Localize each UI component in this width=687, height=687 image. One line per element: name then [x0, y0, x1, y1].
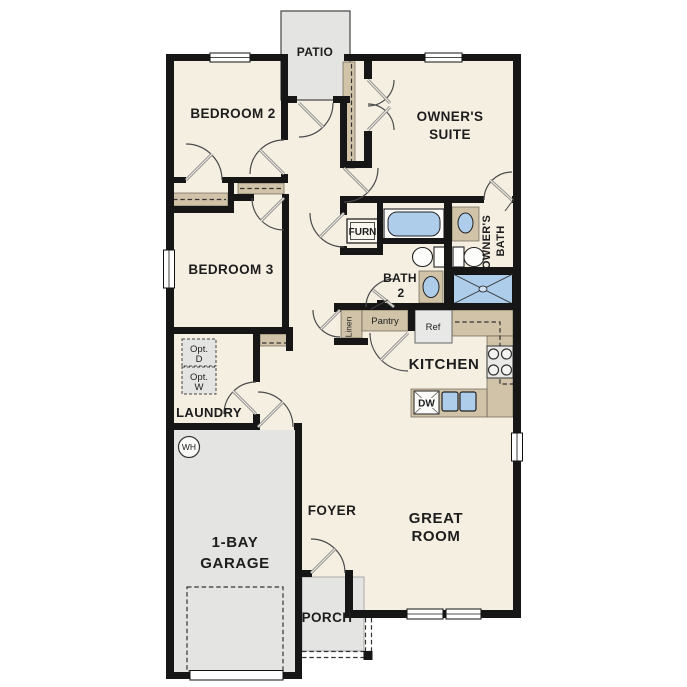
porch-post [364, 651, 373, 660]
foyer-label: FOYER [308, 503, 357, 518]
owners-bath-sink [458, 213, 473, 233]
hall-closet [260, 334, 288, 346]
laundry-label: LAUNDRY [176, 405, 242, 420]
owners-toilet-tank [453, 247, 464, 267]
bath2-toilet-bowl [413, 248, 433, 267]
bath2-label-2: 2 [398, 286, 405, 300]
burner-icon [489, 349, 499, 359]
window-bedroom2 [210, 53, 250, 62]
water-heater-label: WH [182, 442, 196, 452]
owners-bath-label-1: OWNER'S [481, 215, 493, 269]
fridge-label: Ref [426, 322, 441, 333]
owners-suite-label-2: SUITE [429, 127, 471, 142]
owners-bath-label-2: BATH [495, 226, 507, 257]
window-bedroom3 [164, 250, 175, 288]
great-room-label-1: GREAT [409, 510, 463, 527]
window-great-room-right [512, 433, 523, 461]
patio-label: PATIO [297, 45, 333, 59]
wall-kitchen-top [334, 303, 521, 310]
opt-washer-label-2: W [195, 382, 204, 393]
kitchen-sink-basin [460, 392, 476, 411]
bath2-label-1: BATH [383, 271, 417, 285]
burner-icon [502, 349, 512, 359]
great-room-label-2: ROOM [411, 528, 460, 545]
wall-left-exterior [166, 54, 174, 679]
porch-label: PORCH [302, 610, 353, 625]
kitchen-counter-top [452, 310, 513, 336]
bath2-sink [423, 277, 439, 298]
bedroom3-label: BEDROOM 3 [188, 262, 273, 277]
garage-label-1: 1-BAY [212, 534, 259, 551]
dishwasher-label: DW [418, 399, 435, 410]
garage-door-opening [190, 671, 283, 681]
shower-drain [479, 286, 487, 292]
floor-plan-drawing: PATIO BEDROOM 2 OWNER'S SUITE BEDROOM 3 … [0, 0, 687, 687]
owners-suite-label-1: OWNER'S [417, 109, 484, 124]
garage-label-2: GARAGE [200, 555, 269, 572]
furnace-label: FURN [349, 227, 377, 238]
shower [453, 274, 513, 304]
kitchen-sink-basin [442, 392, 458, 411]
floor-plan-page: PATIO BEDROOM 2 OWNER'S SUITE BEDROOM 3 … [0, 0, 687, 687]
linen-label: Linen [344, 316, 354, 337]
wall-garage-right [295, 430, 302, 679]
stove [487, 346, 513, 378]
pantry-label: Pantry [371, 316, 399, 327]
burner-icon [502, 365, 512, 375]
window-great-room-bottom-2 [446, 609, 481, 619]
opt-dryer-label-2: D [196, 354, 203, 365]
bath2-toilet-tank [434, 247, 445, 267]
bathtub [388, 212, 440, 236]
bedroom2-label: BEDROOM 2 [190, 106, 275, 121]
window-owners-suite [425, 53, 462, 62]
burner-icon [489, 365, 499, 375]
window-great-room-bottom-1 [407, 609, 443, 619]
garage-floor [174, 430, 295, 672]
kitchen-label: KITCHEN [409, 356, 480, 373]
wall-right-exterior [513, 54, 521, 433]
